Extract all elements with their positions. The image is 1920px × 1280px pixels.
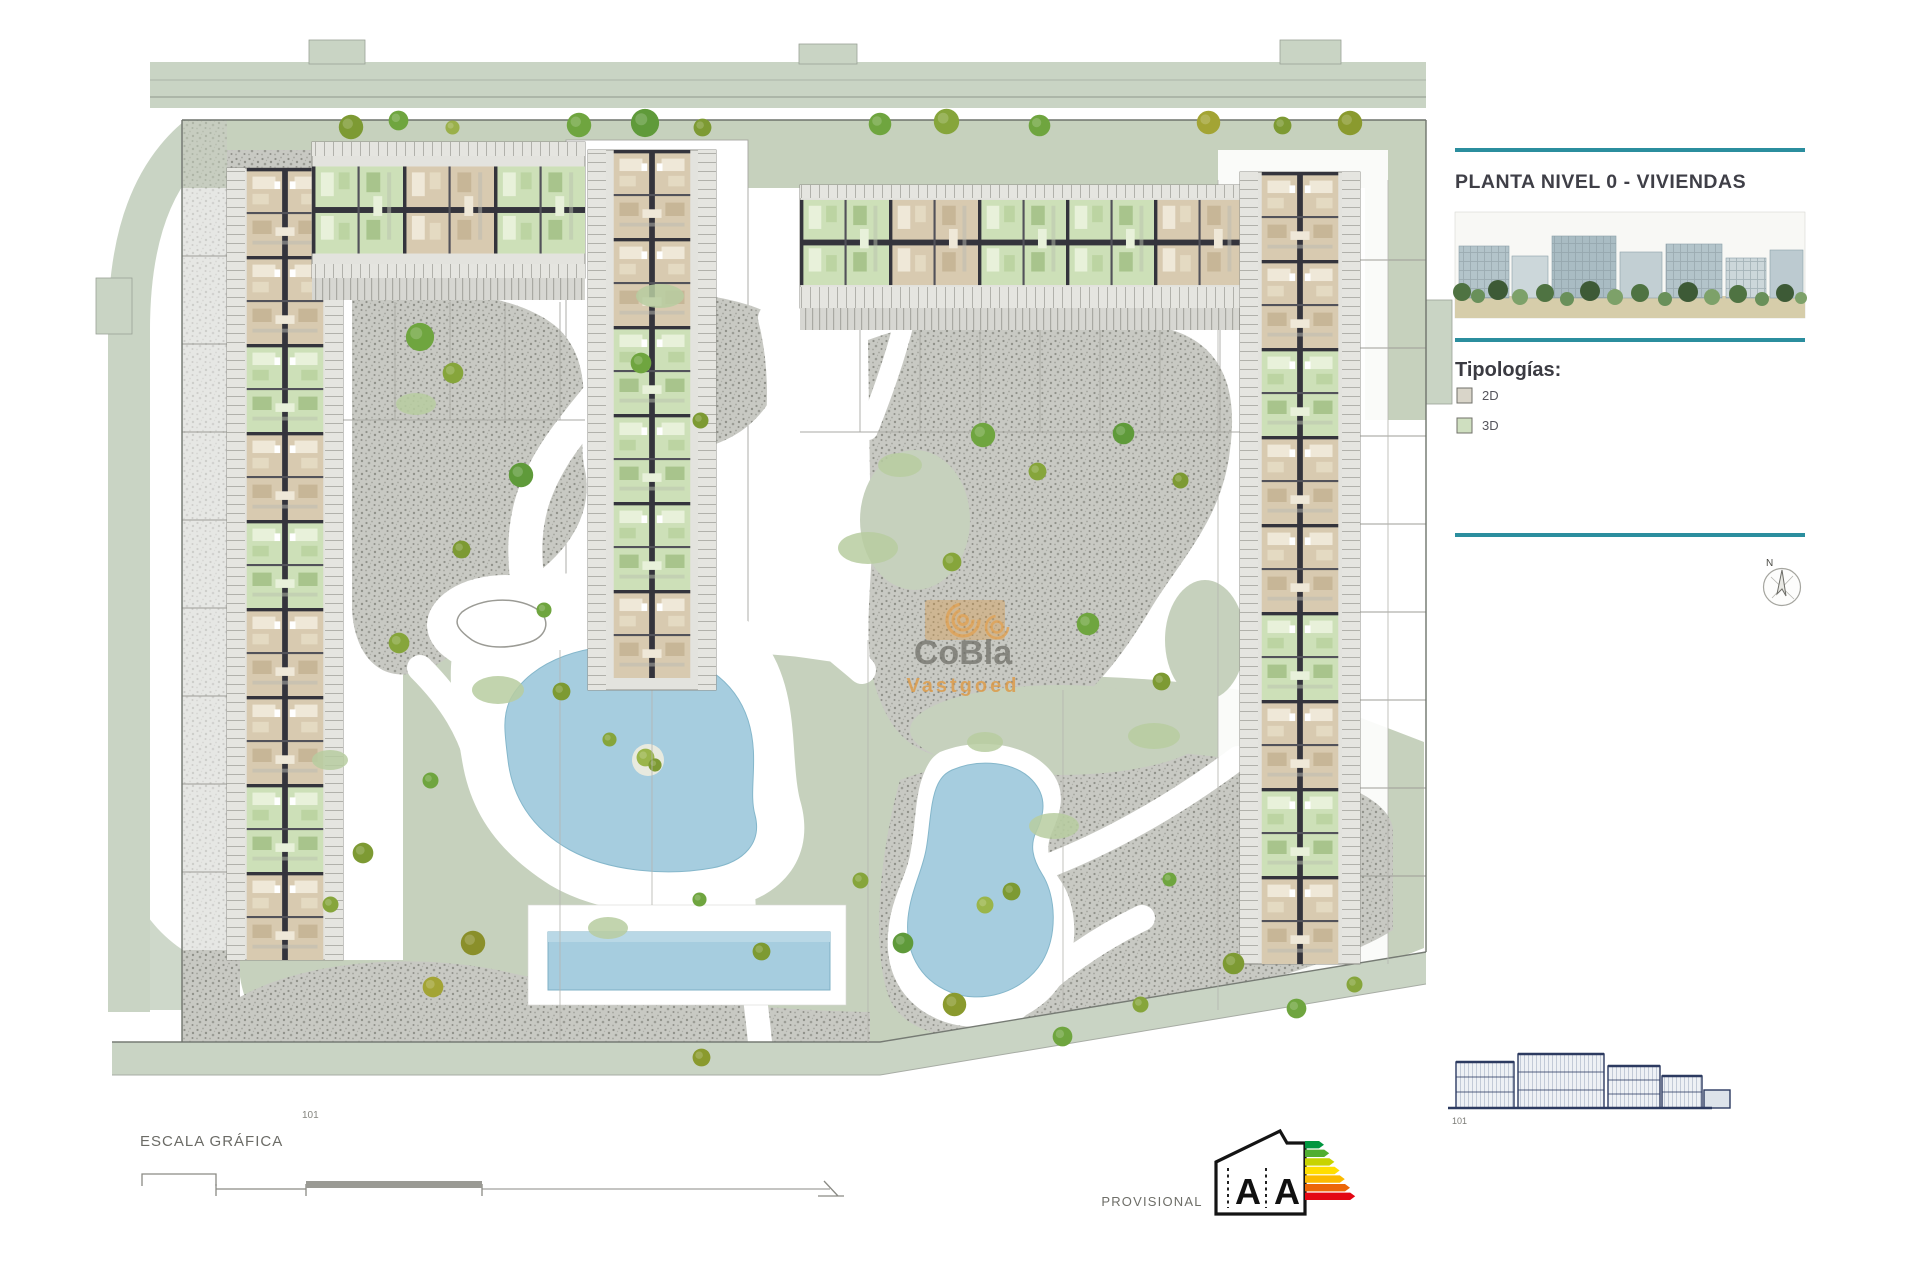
legend-label-3d: 3D: [1482, 418, 1499, 433]
compass-label: N: [1766, 558, 1773, 569]
panel-rule-middle: [1455, 338, 1805, 342]
building-right: [1240, 172, 1360, 964]
building-top-right: [800, 185, 1243, 330]
page-title: PLANTA NIVEL 0 - VIVIENDAS: [1455, 171, 1746, 193]
energy-letter-right: A: [1274, 1171, 1300, 1212]
legend-item-3d: 3D: [1457, 418, 1499, 433]
plan-ref-label: 101: [302, 1110, 319, 1121]
elevation-drawing: 101: [1448, 1054, 1730, 1126]
legend-swatch-3d: [1457, 418, 1472, 433]
north-arrow-icon: N: [1764, 558, 1801, 606]
typologies-heading: Tipologías:: [1455, 359, 1561, 381]
panel-rule-bottom: [1455, 533, 1805, 537]
legend-item-2d: 2D: [1457, 388, 1499, 403]
legend-label-2d: 2D: [1482, 388, 1499, 403]
energy-letter-left: A: [1235, 1171, 1261, 1212]
elevation-ref-label: 101: [1452, 1116, 1467, 1126]
project-render-thumbnail: [1453, 212, 1807, 318]
watermark-line2: Vastgoed: [907, 675, 1020, 697]
watermark-line1: CoBla: [914, 634, 1013, 672]
panel-rule-top: [1455, 148, 1805, 152]
site-plan-sheet: CoBla Vastgoed 101 PLANTA NIVEL 0 - VIVI…: [0, 0, 1920, 1280]
legend-panel: PLANTA NIVEL 0 - VIVIENDAS: [1453, 148, 1807, 606]
plan-canvas: CoBla Vastgoed 101 PLANTA NIVEL 0 - VIVI…: [0, 0, 1920, 1280]
scale-label: ESCALA GRÁFICA: [140, 1133, 283, 1150]
building-top-left: [312, 142, 585, 300]
provisional-label: PROVISIONAL: [1101, 1194, 1202, 1209]
legend-swatch-2d: [1457, 388, 1472, 403]
